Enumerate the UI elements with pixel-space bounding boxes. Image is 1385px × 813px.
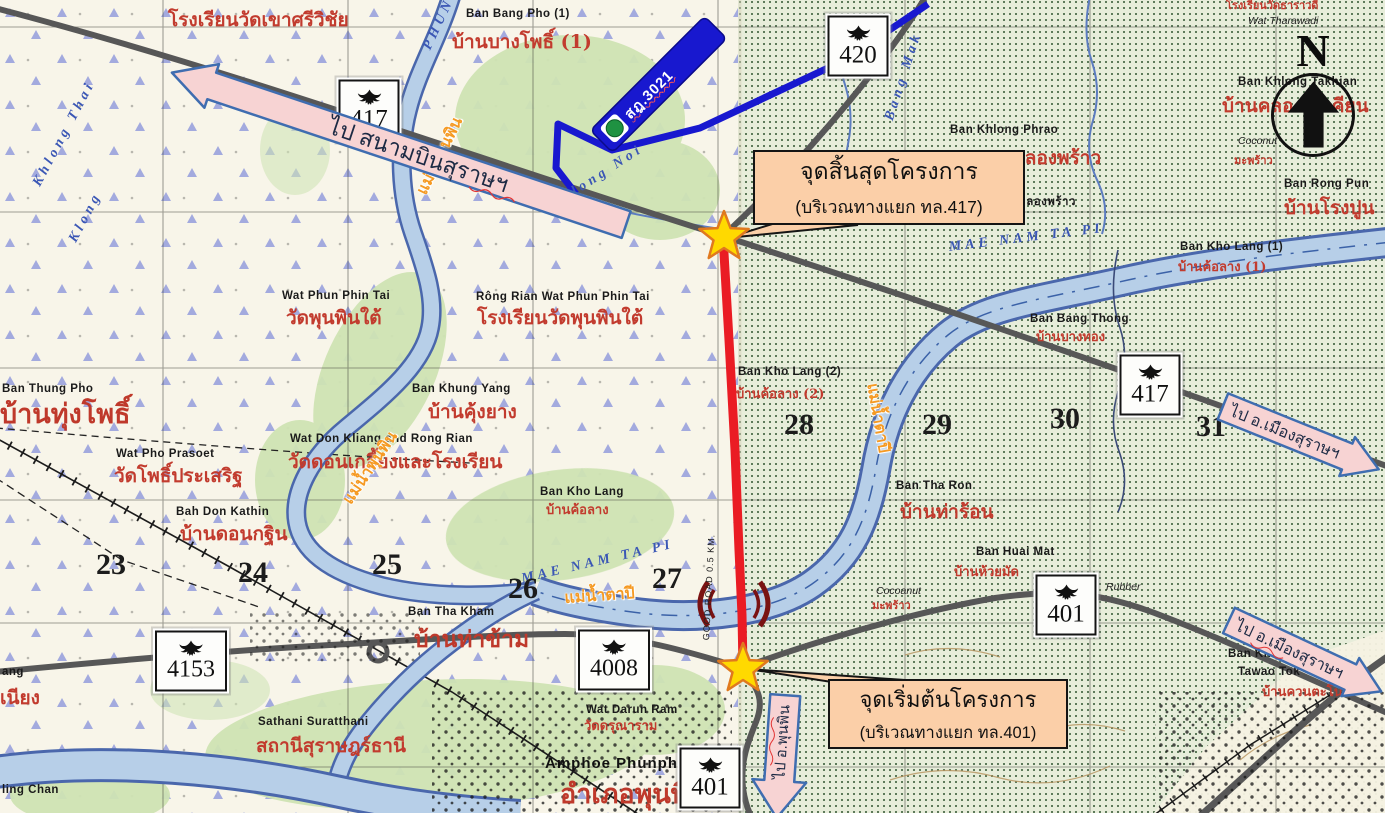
route-shield-420: 420 bbox=[828, 16, 889, 77]
garuda-icon bbox=[601, 640, 627, 657]
garuda-icon bbox=[697, 757, 723, 774]
direction-arrow-phunphin: ไป อ.พุนพิน bbox=[748, 692, 815, 813]
callout-subtitle: (บริเวณทางแยก ทล.417) bbox=[755, 193, 1023, 221]
route-shield-4008: 4008 bbox=[578, 630, 650, 691]
topo-map: โรงเรียนวัดเขาศรีวิชัยBan Bang Pho (1)บ้… bbox=[0, 0, 1385, 813]
route-number: 417 bbox=[1131, 381, 1169, 406]
route-shield-417: 417 bbox=[1120, 355, 1181, 416]
route-number: 401 bbox=[691, 774, 729, 799]
callout-title: จุดสิ้นสุดโครงการ bbox=[755, 154, 1023, 190]
callout-title: จุดเริ่มต้นโครงการ bbox=[830, 682, 1066, 717]
north-indicator: N bbox=[1271, 30, 1355, 157]
end-point-star-icon bbox=[699, 211, 748, 258]
route-shield-401: 401 bbox=[680, 748, 741, 809]
start-point-star-icon bbox=[718, 643, 767, 690]
garuda-icon bbox=[1053, 584, 1079, 601]
garuda-icon bbox=[845, 25, 871, 42]
garuda-icon bbox=[178, 641, 204, 658]
route-shield-401: 401 bbox=[1036, 575, 1097, 636]
route-shield-4153: 4153 bbox=[155, 631, 227, 692]
route-number: 4153 bbox=[167, 658, 215, 682]
north-label: N bbox=[1271, 30, 1355, 71]
callout-subtitle: (บริเวณทางแยก ทล.401) bbox=[830, 720, 1066, 746]
route-number: 420 bbox=[839, 42, 877, 67]
callout-project-start: จุดเริ่มต้นโครงการ (บริเวณทางแยก ทล.401) bbox=[828, 679, 1068, 749]
route-number: 4008 bbox=[590, 657, 638, 681]
callout-project-end: จุดสิ้นสุดโครงการ (บริเวณทางแยก ทล.417) bbox=[753, 150, 1025, 225]
garuda-icon bbox=[356, 89, 382, 106]
route-number: 401 bbox=[1047, 601, 1085, 626]
north-arrow-icon bbox=[1271, 73, 1355, 157]
garuda-icon bbox=[1137, 364, 1163, 381]
